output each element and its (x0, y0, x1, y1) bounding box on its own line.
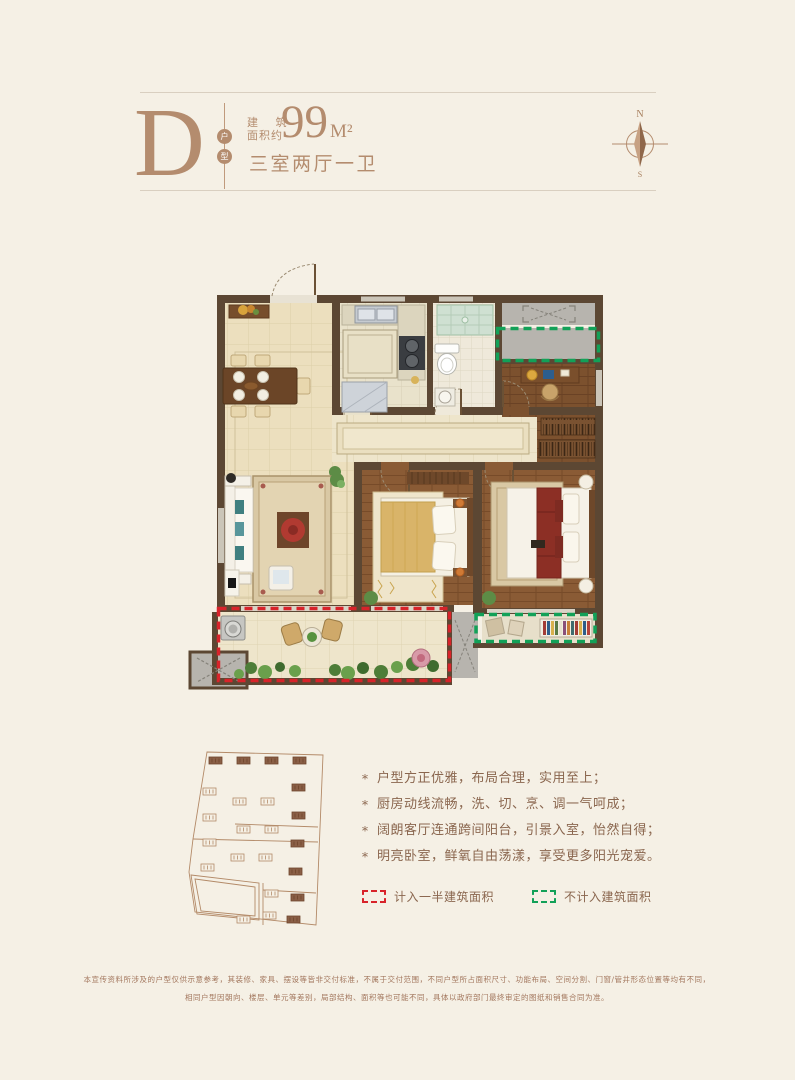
area-unit: M² (330, 121, 353, 143)
disclaimer-line-1: 本宣传资料所涉及的户型仅供示意参考，其装修、家具、摆设等皆非交付标准，不属于交付… (77, 971, 717, 989)
legend-item-half-area: 计入一半建筑面积 (362, 888, 494, 905)
header-rule-top (140, 92, 656, 93)
red-dashed-swatch (362, 890, 386, 903)
bullet-marker: * (362, 792, 377, 818)
feature-item: * 明亮卧室，鲜氧自由荡漾，享受更多阳光宠爱。 (362, 844, 662, 870)
feature-item: * 阔朗客厅连通跨间阳台，引景入室，怡然自得； (362, 818, 662, 844)
legend-label: 计入一半建筑面积 (394, 888, 494, 905)
legend: 计入一半建筑面积 不计入建筑面积 (362, 888, 652, 905)
floor-plan (185, 260, 645, 694)
unit-type-char-bottom: 型 (217, 149, 232, 164)
site-plan (175, 742, 345, 927)
bullet-marker: * (362, 844, 377, 870)
feature-text: 阔朗客厅连通跨间阳台，引景入室，怡然自得； (377, 818, 661, 844)
bullet-marker: * (362, 766, 377, 792)
feature-text: 明亮卧室，鲜氧自由荡漾，享受更多阳光宠爱。 (377, 844, 661, 870)
unit-letter: D (134, 94, 205, 192)
layout-description: 三室两厅一卫 (249, 149, 378, 176)
building-area: 99 M² (281, 99, 353, 146)
feature-list: * 户型方正优雅，布局合理，实用至上； * 厨房动线流畅，洗、切、烹、调一气呵成… (362, 766, 662, 870)
unit-type-char-top: 户 (217, 129, 232, 144)
feature-item: * 厨房动线流畅，洗、切、烹、调一气呵成； (362, 792, 662, 818)
feature-item: * 户型方正优雅，布局合理，实用至上； (362, 766, 662, 792)
feature-text: 户型方正优雅，布局合理，实用至上； (377, 766, 607, 792)
compass-icon: N S (608, 104, 672, 178)
living-room (225, 473, 345, 602)
green-dashed-swatch (532, 890, 556, 903)
unit-type-divider: 户 型 (217, 103, 232, 189)
brochure-page: D 户 型 建 筑 面积约 99 M² 三室两厅一卫 N S (0, 0, 795, 1080)
bullet-marker: * (362, 818, 377, 844)
disclaimer-line-2: 相同户型因朝向、楼层、单元等差别，局部结构、面积等也可能不同，具体以政府部门最终… (77, 989, 717, 1007)
legend-label: 不计入建筑面积 (564, 888, 652, 905)
feature-text: 厨房动线流畅，洗、切、烹、调一气呵成； (377, 792, 634, 818)
area-value: 99 (281, 99, 328, 146)
compass-north-label: N (636, 109, 643, 120)
compass-south-label: S (638, 170, 642, 178)
header-rule-bottom (140, 190, 656, 191)
disclaimer: 本宣传资料所涉及的户型仅供示意参考，其装修、家具、摆设等皆非交付标准，不属于交付… (77, 971, 717, 1007)
legend-item-excluded: 不计入建筑面积 (532, 888, 652, 905)
